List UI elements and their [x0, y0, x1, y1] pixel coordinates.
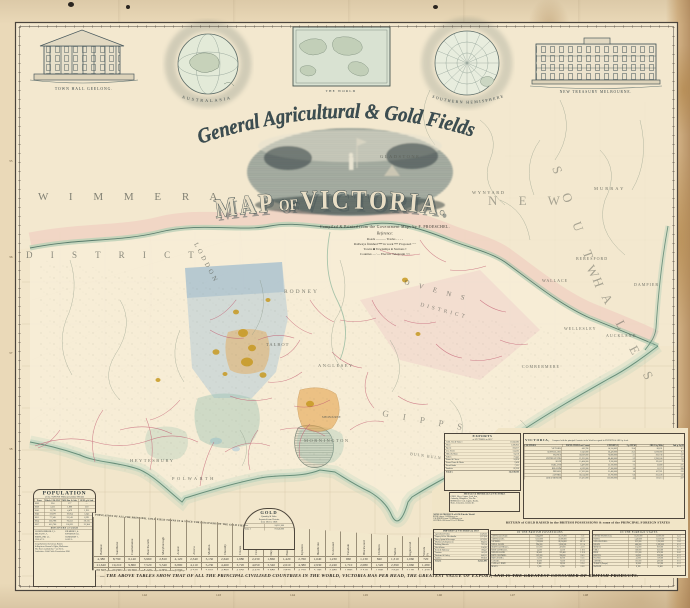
bottom-banner: — THE ABOVE TABLES SHOW THAT OF ALL THE …	[100, 573, 660, 582]
goldfield-town: Dunolly	[223, 532, 227, 555]
svg-text:142: 142	[142, 593, 147, 597]
table-row: SPAIN15,464,0009,200,0000.6195,60779	[524, 460, 684, 463]
goldfield-column: Maryborough2,8105,3405,900	[155, 517, 170, 572]
table-row: 1857410,766100,32123,364	[34, 523, 95, 527]
world-inset-caption: THE WORLD	[326, 89, 357, 93]
svg-text:147: 147	[510, 593, 515, 597]
map-label: AUCKLAND	[606, 333, 636, 338]
legend-heading: Reference:	[376, 232, 393, 236]
map-label: HEYTESBURY	[130, 458, 175, 463]
svg-text:148: 148	[583, 593, 588, 597]
svg-text:35: 35	[9, 159, 13, 163]
goldfield-town: St Arnaud	[331, 538, 335, 555]
metals-note: METALS & MINERALS of VICTORIA GOLD, Silv…	[449, 492, 520, 512]
table-row: MALTA1,2004,7000 0 8	[491, 565, 589, 568]
population-notes: Compiled from the Census Returns& Regist…	[34, 541, 95, 553]
town-hall-caption: TOWN HALL GEELONG.	[55, 87, 113, 91]
svg-text:143: 143	[216, 593, 221, 597]
goldfield-town: Castlemaine	[130, 532, 134, 555]
goldfield-column: Sandhurst8,79019,21020,600	[108, 517, 123, 572]
table-row: FRANCE36,039,00076,800,0002.1203,736177	[524, 453, 684, 456]
goldfield-town: Blackwood	[362, 540, 366, 555]
treasury-caption: NEW TREASURY MELBOURNE.	[560, 90, 632, 94]
svg-text:144: 144	[290, 593, 295, 597]
credit-line: Compiled & Printed from the Government M…	[320, 225, 450, 229]
population-town-list: WARRNAMBOOL 2,3..BELFAST 1,7..PORTLAND 1…	[34, 530, 95, 542]
goldfield-column: Dunolly2,6404,4604,890	[217, 517, 232, 572]
svg-text:145: 145	[363, 593, 368, 597]
goldfield-town: Talbot	[393, 542, 397, 555]
table-row: AUSTRALASIA1,042,00026,420,00025.33,078,…	[524, 450, 684, 453]
population-table: POPULATION of the TOWNS Without GOLD FIE…	[33, 489, 96, 587]
table-row: 1836224177—	[34, 502, 95, 506]
list-item: Slates, Limestone, Granite &c.	[450, 502, 519, 504]
ink-blot	[126, 5, 130, 9]
table-row: VICTORIA410,76614,550,60335.486,8314.7	[524, 447, 684, 450]
goldfield-column: Ararat4,1206,8907,230	[170, 517, 185, 572]
goldfield-town: Chiltern	[378, 541, 382, 555]
svg-text:146: 146	[437, 593, 442, 597]
foreign-states-table: IN THE FOREIGN STATES UNITED STATES (Cal…	[592, 530, 686, 576]
antique-map-sheet: TOWN HALL GEELONG. AUSTRALASIA THE WORLD	[0, 0, 690, 608]
table-row: Value £97,248,000	[244, 527, 294, 531]
goldfield-table-note: N.B. The Population of the Gold Field To…	[96, 569, 226, 572]
map-label: COMBERMERE	[522, 364, 560, 369]
table-row: HOLLAND3,487,00025,100,0007.212,680275	[524, 463, 684, 466]
gold-box-lines: Quantity & ValueExported from Victoriafr…	[244, 515, 294, 523]
goldfield-town: Maryborough	[161, 532, 165, 555]
list-item: AUSTRALASIA from £11 to 12 Millions	[433, 520, 489, 522]
map-label: POLWARTH	[172, 476, 216, 481]
gold-produce-note: ANNUAL PRODUCE of GOLD in the World RUSS…	[433, 513, 489, 528]
table-row: SWEDEN8,10031,4000 0 1	[593, 565, 685, 568]
victoria-table-subtitle: Compared with the principal Countries in…	[552, 439, 628, 442]
imports-table: IMPORTS of VICTORIA in 1857 Agricultural…	[433, 529, 489, 575]
map-label: GLADSTONE	[380, 154, 420, 159]
victoria-comparison-table: VICTORIA, Compared with the principal Co…	[523, 433, 685, 519]
legend-line: Counties —·— Electric Telegraph ⌁⌁	[360, 252, 410, 256]
goldfield-column: Maldon3,1505,2305,610	[201, 517, 216, 572]
british-possessions-table: IN THE BRITISH POSSESSIONS AUSTRALIA (To…	[490, 530, 590, 576]
svg-text:36: 36	[9, 255, 13, 259]
map-label: W I M M E R A	[38, 191, 226, 203]
gold-box-rows: Ozs.24,312,000Value £97,248,000	[244, 523, 294, 530]
goldfield-town: Woods Pt	[422, 544, 429, 555]
legend-line: Roads ——— Tracks - - - -	[367, 237, 403, 241]
treasury-engraving	[530, 38, 662, 89]
map-label: DAMPIER	[634, 282, 659, 287]
svg-text:37: 37	[9, 351, 13, 355]
exports-rows: Gold, Ozs & Value £11,943,383Wool1,586,9…	[445, 441, 520, 471]
imports-rows: Agricultural Produce3,149,562Drapery & G…	[434, 533, 488, 560]
victoria-table-title: VICTORIA,	[525, 438, 550, 442]
table-row: AUSTRIA36,514,00022,700,0000.6255,226143	[524, 473, 684, 476]
legend-line: Railways finished ━━ in work ╍╍ Proposed…	[354, 242, 416, 246]
map-label: WALLACE	[542, 278, 568, 283]
imports-total: Total £15,622,891	[434, 559, 488, 562]
svg-text:38: 38	[9, 447, 13, 451]
foreign-table-rows: UNITED STATES (Cal.)13,212,00051,300,000…	[593, 535, 685, 568]
table-row: GREAT BRITAIN27,475,000122,000,0004.4121…	[524, 476, 684, 479]
gold-return-header: RETURN of GOLD RAISED in the BRITISH POS…	[490, 521, 686, 530]
goldfield-town: Avoca	[192, 532, 196, 555]
goldfield-town: Kyneton	[300, 536, 304, 555]
goldfield-town: Sandhurst	[115, 532, 119, 555]
table-row: 18383,5111,800250	[34, 505, 95, 509]
table-row: UNITED STATES23,191,00068,400,0002.92,93…	[524, 456, 684, 459]
goldfield-town: Ararat	[177, 532, 181, 555]
goldfield-column: Castlemaine6,1409,86010,400	[124, 517, 139, 572]
table-row: 185177,34523,1438,291	[34, 516, 95, 520]
southern-hemisphere-globe	[427, 23, 507, 103]
map-label: MORNINGTON	[304, 438, 350, 443]
goldfield-town: Inglewood	[408, 542, 412, 556]
goldfield-town: Beechworth	[146, 532, 150, 555]
produce-lines: RUSSIA above £4 Millions p. an.CALIFORNI…	[433, 516, 489, 522]
table-row: Ozs.24,312,000	[244, 523, 294, 527]
australasia-globe	[170, 26, 246, 102]
population-rows: 1836224177—18383,5111,800250184111,7384,…	[34, 502, 95, 527]
table-row: PRUSSIA17,202,00031,400,0001.8107,921159	[524, 470, 684, 473]
victoria-table-rows: VICTORIA410,76614,550,60335.486,8314.7AU…	[524, 447, 684, 480]
map-label: TALBOT	[266, 342, 289, 347]
goldfield-column: Avoca2,3404,1104,520	[186, 517, 201, 572]
map-label: N E W	[488, 193, 569, 208]
gold-export-box: GOLD Quantity & ValueExported from Victo…	[243, 508, 295, 550]
exports-table: EXPORTS of VICTORIA in 1857 Gold, Ozs & …	[444, 433, 521, 491]
table-row: 184632,87910,9545,245	[34, 512, 95, 516]
ink-blot	[433, 5, 438, 9]
goldfield-column: Beechworth3,9607,5208,140	[139, 517, 154, 572]
goldfield-column: Ballarat4,38021,64023,100	[93, 517, 108, 572]
exports-total: Total £14,550,603	[445, 470, 520, 473]
list-item: Authorities: Gold Fields Commission 1858…	[35, 550, 94, 553]
map-label: MURRAY	[594, 186, 625, 191]
map-label: MELBOURNE	[322, 415, 341, 419]
goldfield-town: Heathcote	[316, 537, 320, 555]
goldfield-town: Ballarat	[99, 532, 103, 555]
goldfield-town: Taradale	[347, 539, 351, 555]
goldfield-town: Maldon	[208, 532, 212, 555]
map-label: RODNEY	[284, 289, 319, 295]
table-row: 184111,7384,4791,911	[34, 509, 95, 513]
world-map-inset	[293, 27, 390, 86]
metals-lines: GOLD, Silver, Copper, Lead, Iron,Antimon…	[450, 496, 519, 505]
map-label: BERESFORD	[576, 256, 608, 261]
table-row: 1854236,79876,55320,115	[34, 519, 95, 523]
british-table-rows: AUSTRALIA (Total)8,644,00033,575,000£ s …	[491, 535, 589, 568]
map-label: WELLESLEY	[564, 326, 597, 331]
map-label: WYNYARD	[472, 190, 506, 195]
legend-line: Towns ■ Townships ● Stations ▪	[364, 247, 407, 251]
ink-blot	[68, 2, 74, 7]
map-label: ANGLESEY	[318, 363, 354, 368]
goldfield-town: Clunes	[238, 532, 242, 555]
table-row: BELGIUM4,529,00017,300,0003.811,373398	[524, 466, 684, 469]
map-label: D I S T R I C T	[26, 250, 202, 260]
